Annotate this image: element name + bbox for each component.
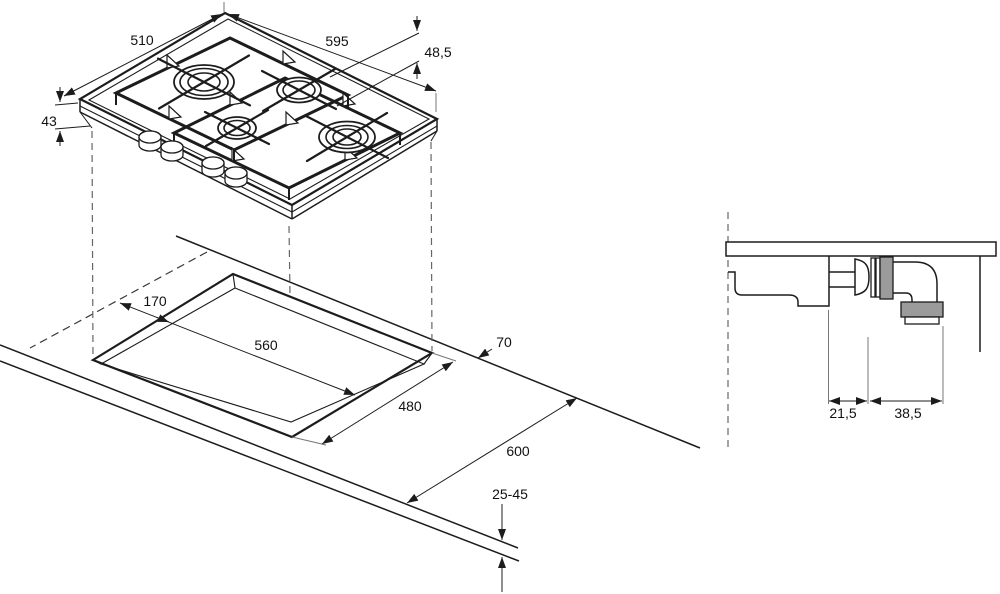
hob-isometric-view: 510 595 48,5 43 — [41, 2, 452, 219]
dim-label-43: 43 — [41, 113, 57, 129]
dim-label-480: 480 — [398, 398, 422, 414]
gas-connection-detail-view: 21,5 38,5 — [726, 212, 996, 450]
hob-body-profile — [728, 256, 829, 306]
dimension-38-5: 38,5 — [870, 401, 942, 421]
elbow-outer-wall — [893, 262, 937, 302]
valve-washer — [871, 258, 875, 297]
gas-elbow — [893, 262, 943, 324]
control-knob — [202, 157, 224, 177]
technical-drawing-page: 170 560 480 70 600 25-45 — [0, 0, 1000, 594]
dimension-70: 70 — [478, 334, 512, 358]
dim-label-595: 595 — [325, 33, 349, 49]
elbow-flange-nut — [901, 302, 943, 317]
dimension-21-5: 21,5 — [829, 401, 867, 421]
dim-label-70: 70 — [496, 334, 512, 350]
valve-nut — [880, 257, 893, 299]
dimension-560: 560 — [254, 337, 278, 353]
dim-label-600: 600 — [506, 443, 530, 459]
elbow-pipe-end — [905, 317, 939, 324]
worktop-cross-section — [726, 242, 996, 256]
dim-label-25-45: 25-45 — [492, 486, 528, 502]
dim-label-510: 510 — [130, 32, 154, 48]
dim-label-21-5: 21,5 — [829, 405, 856, 421]
dim-label-48-5: 48,5 — [424, 44, 451, 60]
control-knob — [225, 167, 247, 187]
dim-label-560: 560 — [254, 337, 278, 353]
technical-drawing-canvas: 170 560 480 70 600 25-45 — [0, 0, 1000, 594]
worktop-cutout-view: 170 560 480 70 600 25-45 — [0, 131, 700, 592]
gas-valve — [829, 257, 893, 299]
elbow-inner-wall — [893, 293, 912, 302]
control-knob — [139, 131, 161, 151]
control-knob — [161, 141, 183, 161]
dim-label-170: 170 — [143, 293, 167, 309]
dimension-43: 43 — [41, 87, 90, 146]
dim-label-38-5: 38,5 — [894, 405, 921, 421]
valve-cap — [855, 259, 869, 295]
dimension-25-45: 25-45 — [492, 486, 528, 592]
